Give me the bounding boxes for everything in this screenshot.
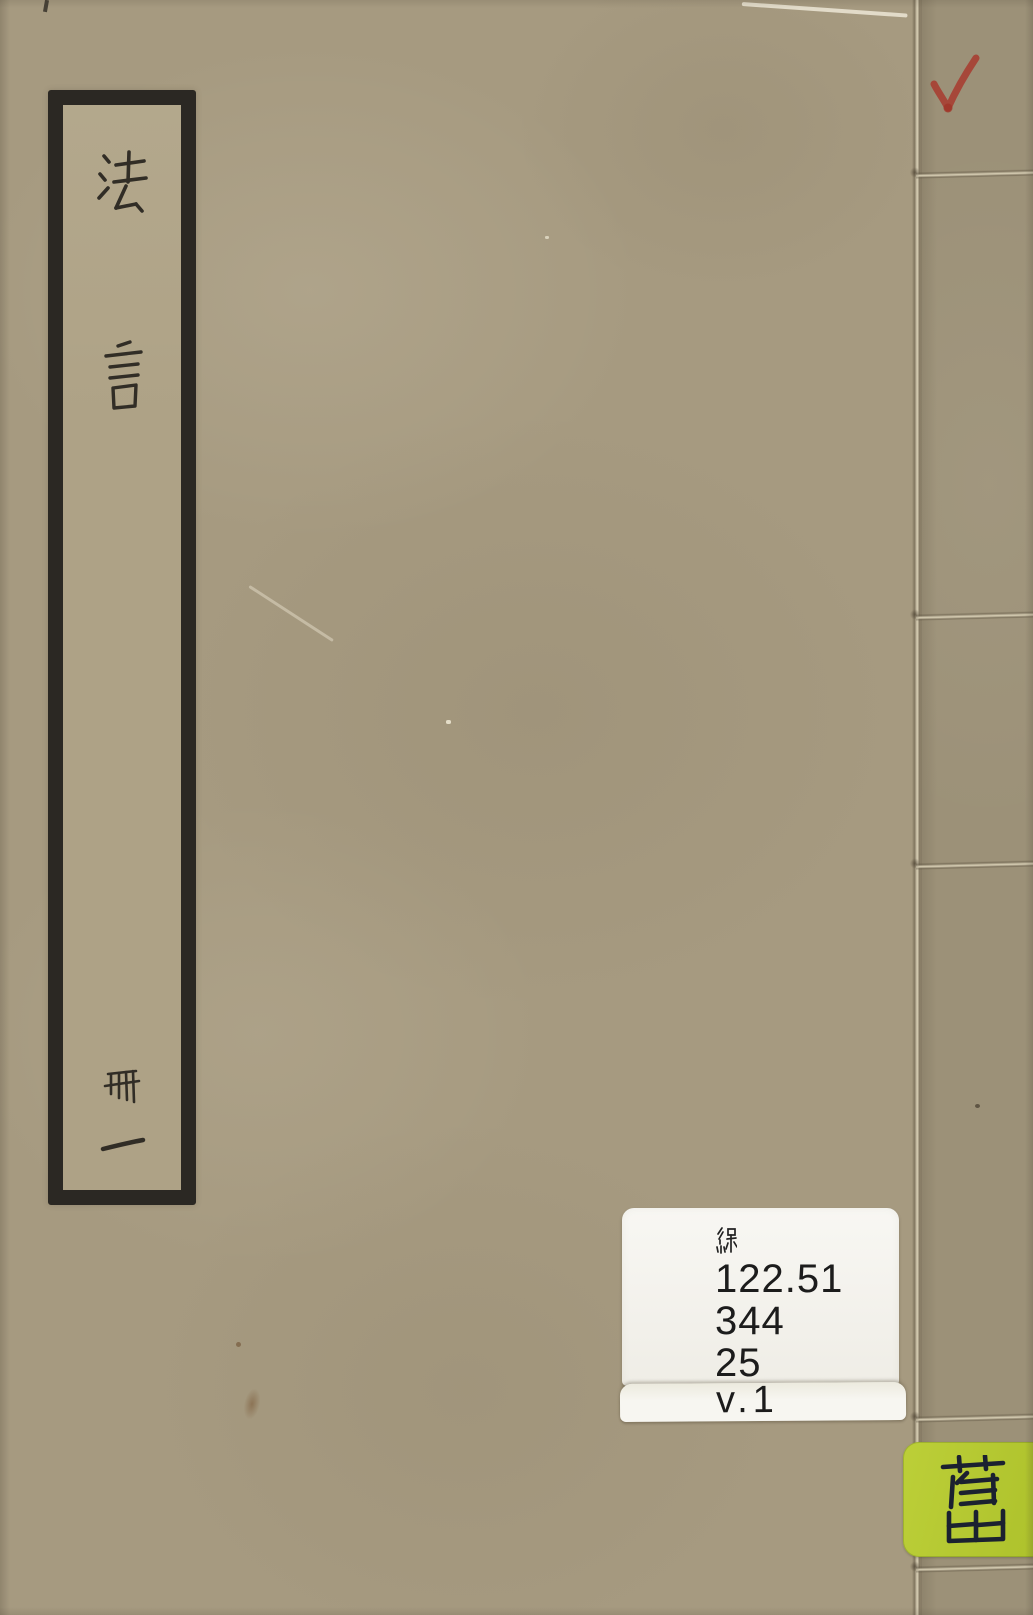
brown-smudge	[241, 1387, 263, 1422]
paper-speck	[236, 1342, 241, 1347]
red-checkmark-icon	[924, 52, 980, 116]
category-char-jiu	[933, 1455, 1013, 1545]
book-cover-scan: 122.51 344 25 v.1	[0, 0, 1033, 1615]
paper-scratch-streak	[742, 2, 908, 18]
volume-line: v.1	[716, 1380, 779, 1420]
stitch-knot	[910, 1561, 920, 1572]
spine-panel	[921, 0, 1033, 1615]
call-number-sticker: 122.51 344 25	[622, 1208, 899, 1386]
title-label	[48, 90, 196, 1205]
title-char-yan	[100, 340, 146, 414]
volume-char-yi	[100, 1136, 146, 1154]
ink-tick-mark	[43, 0, 49, 12]
paper-fleck	[446, 720, 451, 724]
call-number-line: 25	[715, 1342, 843, 1384]
stitch-knot	[910, 609, 920, 620]
paper-speck	[975, 1104, 980, 1108]
call-number-script-char	[715, 1226, 737, 1256]
binding-thread-vertical	[912, 0, 922, 1615]
category-sticker	[903, 1442, 1033, 1557]
stitch-knot	[910, 167, 920, 178]
paper-fleck	[545, 236, 549, 239]
call-number-line: 122.51	[715, 1258, 843, 1300]
title-char-fa	[96, 148, 148, 218]
stitch-knot	[910, 1411, 920, 1422]
stitch-knot	[910, 858, 920, 869]
call-number-volume-strip: v.1	[620, 1382, 906, 1422]
paper-scratch-streak	[248, 585, 334, 642]
volume-char-ce	[104, 1064, 140, 1112]
call-number-line: 344	[715, 1300, 843, 1342]
